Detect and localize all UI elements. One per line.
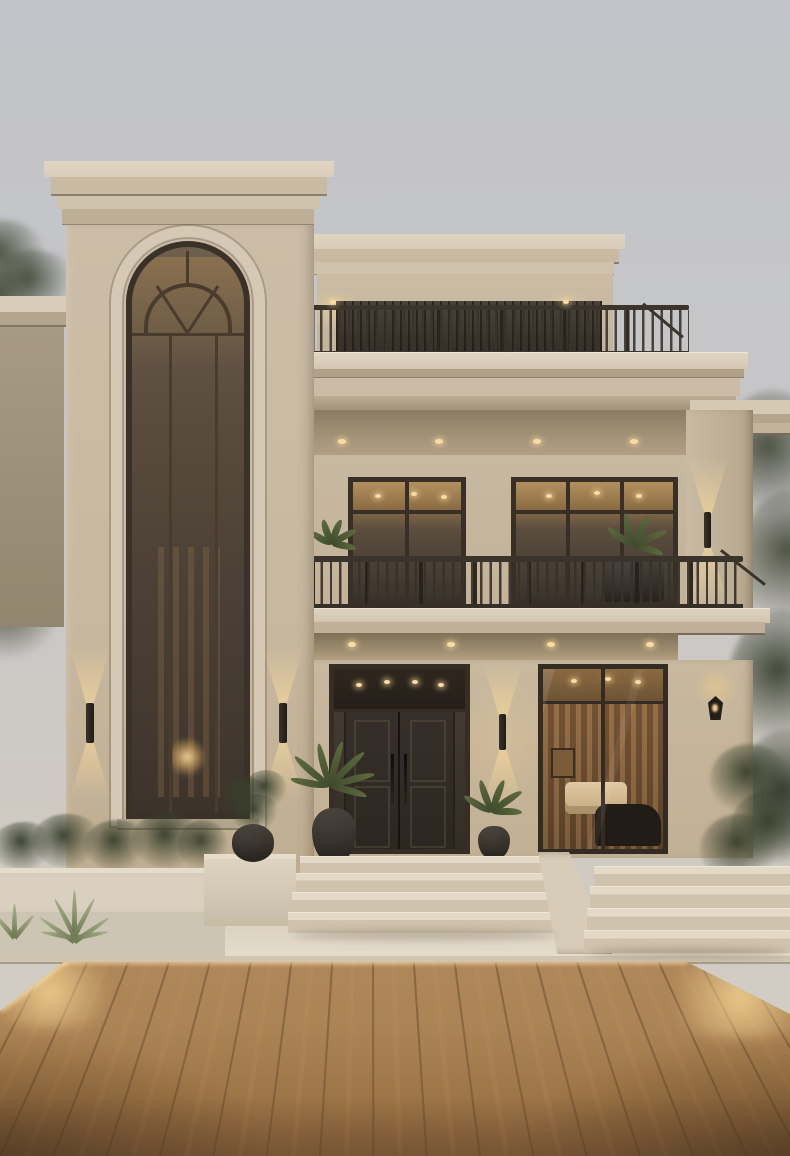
- recessed-downlight: [630, 439, 638, 444]
- lower-downlight-row: [348, 637, 654, 651]
- bonsai-pot: [232, 824, 274, 862]
- wall-sconce-tower-right: [279, 703, 287, 743]
- interior-table-lamp-glow: [170, 735, 204, 779]
- step-shadow: [588, 948, 788, 958]
- entry-steps: [288, 856, 560, 932]
- muntin-mullion: [169, 333, 172, 813]
- recessed-downlight: [646, 642, 654, 647]
- wall-sconce-pier: [704, 512, 711, 548]
- roof-terrace-railing: [311, 305, 689, 355]
- main-cornice-cap: [280, 352, 748, 370]
- tower-cornice-step: [57, 196, 320, 209]
- wall-sconce-entry: [499, 714, 506, 750]
- recessed-downlight: [348, 642, 356, 647]
- recessed-downlight: [338, 439, 346, 444]
- recessed-downlight: [533, 439, 541, 444]
- muntin-spoke: [186, 251, 189, 285]
- penthouse-cornice: [303, 234, 625, 249]
- recessed-downlight: [435, 439, 443, 444]
- planter-pedestal: [204, 854, 296, 926]
- railing-balusters: [311, 310, 689, 351]
- agave-plant-small: [0, 898, 40, 946]
- side-steps: [584, 866, 790, 952]
- balcony-slab-cap: [282, 608, 770, 623]
- shrub-row: [0, 806, 222, 876]
- recessed-downlight: [447, 642, 455, 647]
- balcony-railing: [311, 556, 743, 610]
- wood-deck: [0, 958, 790, 1156]
- recessed-downlight: [547, 642, 555, 647]
- tower-cornice-band: [51, 177, 327, 196]
- step-shadow: [292, 930, 556, 940]
- muntin-mullion: [215, 333, 218, 813]
- boundary-wall: [0, 327, 64, 627]
- penthouse-sconce: [563, 300, 569, 304]
- arch-window: [126, 241, 250, 819]
- door-handle: [404, 754, 407, 804]
- door-transom: [334, 669, 465, 712]
- agave-plant: [28, 882, 124, 946]
- door-handle: [391, 754, 394, 804]
- boundary-wall-band: [0, 312, 73, 327]
- lantern-flame: [712, 704, 718, 712]
- door-split: [398, 712, 400, 854]
- penthouse-sconce: [330, 300, 336, 304]
- main-cornice-fascia: [290, 378, 740, 396]
- upper-downlight-row: [338, 433, 638, 449]
- main-cornice-band: [286, 369, 744, 378]
- tower-cornice-base: [62, 209, 314, 225]
- living-room-window: [538, 664, 668, 854]
- wall-sconce-tower-left: [86, 703, 94, 743]
- railing-balusters: [311, 562, 743, 604]
- tower-cornice-cap: [44, 161, 334, 177]
- glass-reflection: [543, 669, 663, 849]
- villa-dusk-photo: [0, 0, 790, 1156]
